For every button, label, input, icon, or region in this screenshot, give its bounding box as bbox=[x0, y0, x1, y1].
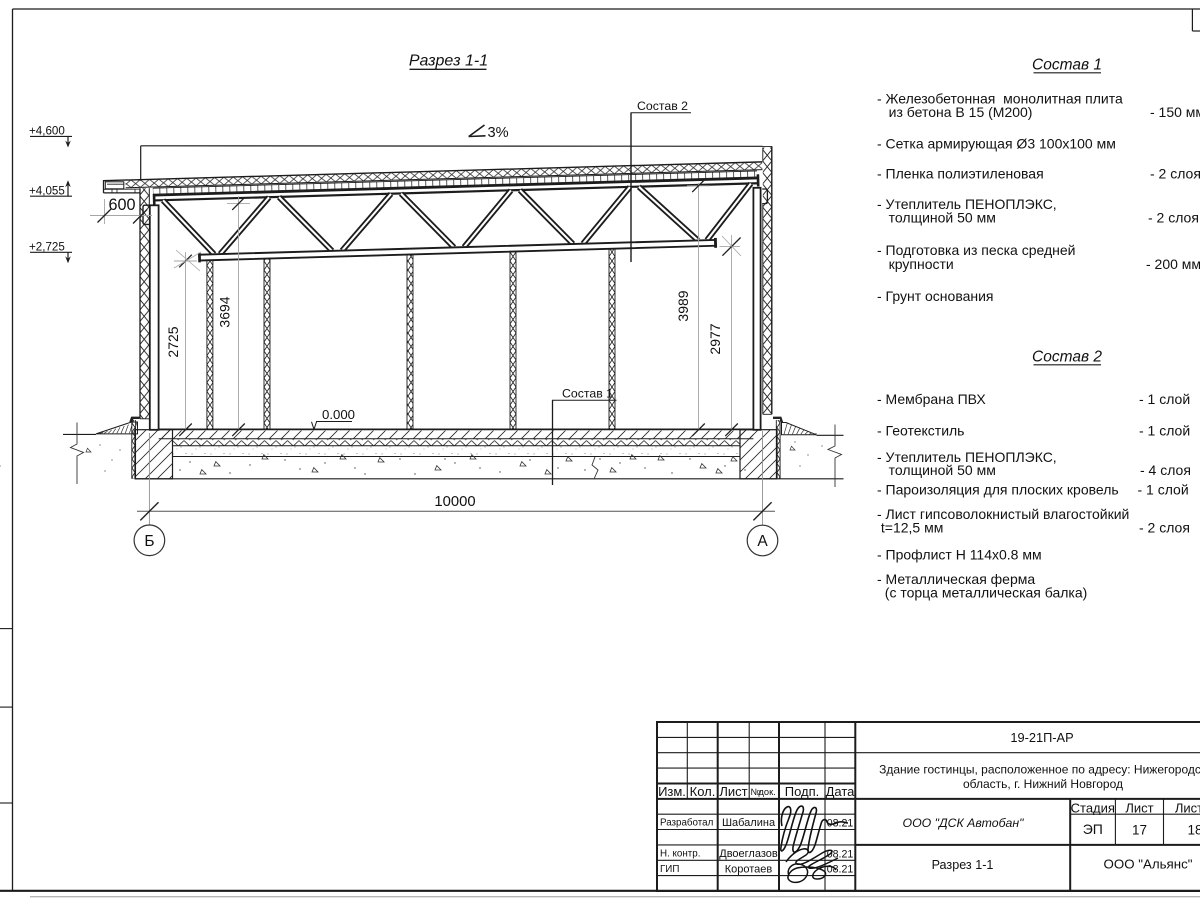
svg-text:600: 600 bbox=[109, 196, 136, 214]
svg-text:- 1 слой: - 1 слой bbox=[1139, 391, 1190, 407]
svg-text:+4,055: +4,055 bbox=[29, 184, 65, 197]
svg-text:ЭП: ЭП bbox=[1083, 821, 1103, 837]
svg-text:- 1 слой: - 1 слой bbox=[1139, 422, 1190, 438]
svg-text:- 2 слоя: - 2 слоя bbox=[1139, 519, 1190, 535]
svg-text:Изм.: Изм. bbox=[658, 784, 686, 799]
svg-text:Разработал: Разработал bbox=[660, 818, 714, 829]
svg-text:(с торца металлическая балка): (с торца металлическая балка) bbox=[877, 584, 1087, 600]
svg-text:+2,725: +2,725 bbox=[29, 240, 65, 253]
svg-text:19-21П-АР: 19-21П-АР bbox=[1010, 730, 1073, 745]
svg-text:ГИП: ГИП bbox=[660, 864, 679, 875]
svg-text:2725: 2725 bbox=[165, 326, 181, 357]
svg-text:Состав 2: Состав 2 bbox=[637, 99, 688, 113]
svg-text:- Пароизоляция для плоских кро: - Пароизоляция для плоских кровель bbox=[877, 481, 1119, 497]
svg-text:Кол.: Кол. bbox=[690, 784, 716, 799]
svg-text:0.000: 0.000 bbox=[322, 407, 355, 422]
svg-text:из бетона В 15 (М200): из бетона В 15 (М200) bbox=[877, 104, 1032, 120]
svg-text:ООО "ДСК Автобан": ООО "ДСК Автобан" bbox=[903, 816, 1025, 830]
svg-text:Лист: Лист bbox=[1125, 801, 1153, 816]
svg-text:- 200 мм: - 200 мм bbox=[1146, 256, 1200, 272]
svg-text:область, г. Нижний Новгород: область, г. Нижний Новгород bbox=[963, 777, 1123, 791]
svg-text:- Профлист Н 114х0.8 мм: - Профлист Н 114х0.8 мм bbox=[877, 546, 1042, 562]
svg-text:Здание гостинцы, расположенное: Здание гостинцы, расположенное по адресу… bbox=[879, 762, 1200, 776]
svg-text:Разрез 1-1: Разрез 1-1 bbox=[409, 53, 488, 70]
svg-text:- 1 слой: - 1 слой bbox=[1138, 481, 1189, 497]
svg-text:Стадия: Стадия bbox=[1071, 801, 1115, 816]
svg-text:- Мембрана ПВХ: - Мембрана ПВХ bbox=[877, 391, 986, 407]
svg-text:Подп.: Подп. bbox=[785, 784, 820, 799]
svg-text:Коротаев: Коротаев bbox=[725, 863, 773, 875]
svg-text:2977: 2977 bbox=[707, 323, 723, 354]
svg-text:Состав 1: Состав 1 bbox=[562, 387, 613, 401]
svg-text:3694: 3694 bbox=[217, 296, 233, 327]
svg-text:Состав 2: Состав 2 bbox=[1032, 349, 1102, 366]
svg-text:08.21: 08.21 bbox=[827, 817, 854, 829]
svg-text:Б: Б bbox=[144, 533, 154, 550]
svg-text:17: 17 bbox=[1132, 822, 1147, 837]
svg-text:Лист: Лист bbox=[719, 784, 747, 799]
svg-text:- Геотекстиль: - Геотекстиль bbox=[877, 422, 964, 438]
svg-text:Дата: Дата bbox=[826, 784, 856, 799]
svg-text:+4,600: +4,600 bbox=[29, 125, 65, 138]
svg-text:толщиной 50 мм: толщиной 50 мм bbox=[877, 210, 996, 226]
svg-text:- Пленка полиэтиленовая: - Пленка полиэтиленовая bbox=[877, 166, 1044, 182]
svg-text:Листов: Листов bbox=[1175, 801, 1200, 816]
svg-text:- 2 слоя: - 2 слоя bbox=[1148, 210, 1199, 226]
svg-text:3989: 3989 bbox=[675, 290, 691, 321]
svg-text:- Грунт основания: - Грунт основания bbox=[877, 288, 994, 304]
svg-text:3%: 3% bbox=[488, 125, 509, 141]
svg-text:t=12,5 мм: t=12,5 мм bbox=[877, 519, 943, 535]
svg-text:Шабалина: Шабалина bbox=[722, 817, 776, 829]
svg-text:крупности: крупности bbox=[877, 256, 954, 272]
svg-text:Состав 1: Состав 1 bbox=[1032, 57, 1102, 74]
svg-text:Разрез 1-1: Разрез 1-1 bbox=[932, 858, 994, 872]
svg-text:Двоеглазов: Двоеглазов bbox=[719, 848, 778, 860]
svg-text:А: А bbox=[757, 533, 768, 550]
svg-text:док.: док. bbox=[759, 787, 776, 797]
svg-text:10000: 10000 bbox=[434, 494, 475, 510]
svg-text:08.21: 08.21 bbox=[827, 864, 854, 876]
svg-text:ООО "Альянс": ООО "Альянс" bbox=[1104, 857, 1193, 872]
svg-text:18: 18 bbox=[1187, 822, 1200, 837]
svg-text:- 4 слоя: - 4 слоя bbox=[1140, 462, 1191, 478]
svg-text:- 150 мм: - 150 мм bbox=[1150, 104, 1200, 120]
svg-text:толщиной 50 мм: толщиной 50 мм bbox=[877, 462, 996, 478]
svg-text:- Сетка армирующая Ø3 100х100: - Сетка армирующая Ø3 100х100 мм bbox=[877, 136, 1116, 152]
svg-text:- 2 слоя: - 2 слоя bbox=[1150, 166, 1200, 182]
svg-text:Н. контр.: Н. контр. bbox=[660, 849, 700, 860]
